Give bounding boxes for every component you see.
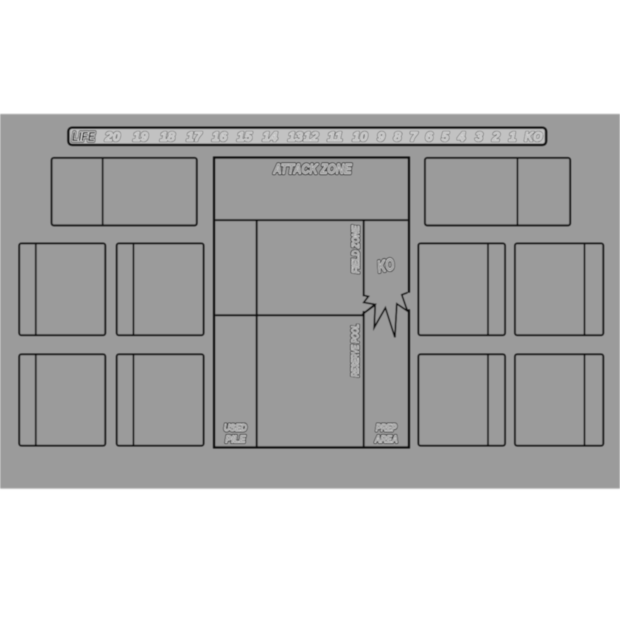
svg-text:2: 2: [491, 129, 500, 144]
svg-text:11: 11: [328, 129, 343, 144]
svg-text:8: 8: [394, 129, 402, 144]
svg-text:12: 12: [304, 129, 320, 144]
svg-text:17: 17: [187, 129, 203, 144]
svg-text:7: 7: [410, 129, 418, 144]
svg-text:FIELD ZONE: FIELD ZONE: [350, 225, 362, 274]
svg-text:5: 5: [441, 129, 449, 144]
svg-text:1: 1: [509, 129, 517, 144]
svg-text:19: 19: [133, 129, 149, 144]
svg-text:4: 4: [457, 129, 466, 144]
svg-text:14: 14: [263, 129, 279, 144]
svg-text:9: 9: [377, 129, 385, 144]
svg-text:18: 18: [160, 129, 176, 144]
svg-text:13: 13: [288, 129, 304, 144]
svg-text:16: 16: [212, 129, 228, 144]
svg-text:6: 6: [425, 129, 433, 144]
svg-text:AREA: AREA: [374, 433, 398, 445]
svg-text:PREP: PREP: [376, 422, 398, 434]
svg-text:KO: KO: [376, 256, 396, 277]
svg-text:20: 20: [104, 129, 121, 144]
svg-text:ATTACK ZONE: ATTACK ZONE: [273, 160, 352, 176]
svg-text:RESERVE POOL: RESERVE POOL: [349, 324, 361, 377]
svg-text:KO: KO: [525, 129, 543, 144]
svg-text:15: 15: [237, 129, 253, 144]
svg-text:LIFE: LIFE: [72, 129, 95, 144]
svg-text:3: 3: [475, 129, 483, 144]
svg-text:10: 10: [353, 129, 369, 144]
svg-text:PILE: PILE: [225, 433, 246, 445]
svg-text:USED: USED: [224, 422, 247, 434]
